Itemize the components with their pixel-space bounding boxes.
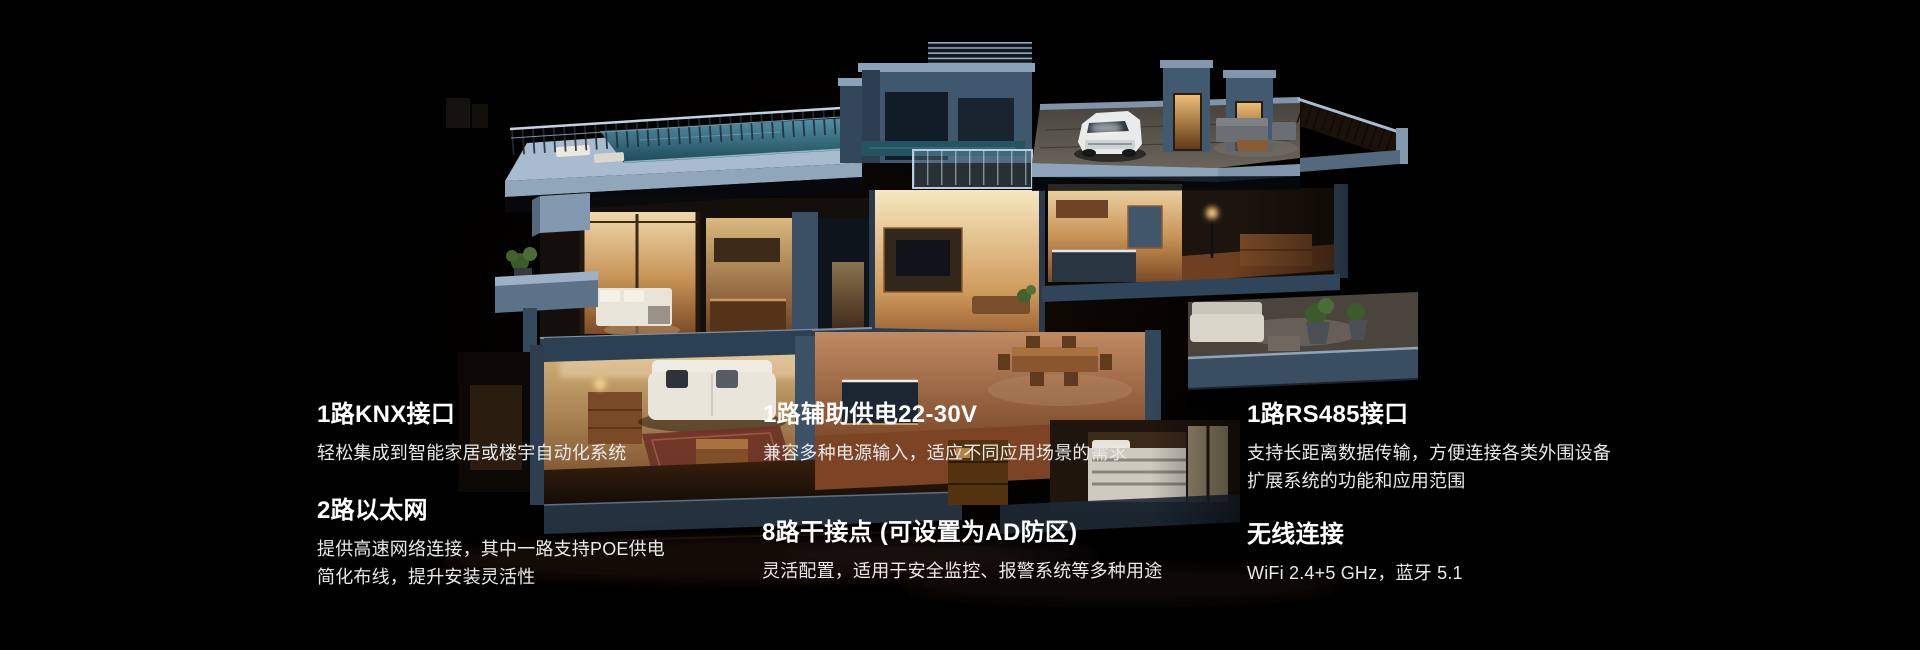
feature-title: 1路RS485接口 <box>1247 399 1611 431</box>
feature-title: 8路干接点 (可设置为AD防区) <box>762 517 1162 549</box>
upper-floor-right <box>1042 184 1350 302</box>
feature-dry-contacts: 8路干接点 (可设置为AD防区) 灵活配置，适用于安全监控、报警系统等多种用途 <box>762 517 1162 585</box>
feature-ethernet: 2路以太网 提供高速网络连接，其中一路支持POE供电 简化布线，提升安装灵活性 <box>317 495 665 591</box>
feature-line: 轻松集成到智能家居或楼宇自动化系统 <box>317 439 626 467</box>
feature-wireless: 无线连接 WiFi 2.4+5 GHz，蓝牙 5.1 <box>1247 519 1463 587</box>
feature-line: 兼容多种电源输入，适应不同应用场景的需求 <box>763 439 1127 467</box>
feature-title: 1路KNX接口 <box>317 399 626 431</box>
feature-title: 1路辅助供电22-30V <box>763 399 1127 431</box>
feature-line: 支持长距离数据传输，方便连接各类外围设备 <box>1247 439 1611 467</box>
feature-knx: 1路KNX接口 轻松集成到智能家居或楼宇自动化系统 <box>317 399 626 467</box>
feature-line: 扩展系统的功能和应用范围 <box>1247 467 1611 495</box>
feature-aux-power: 1路辅助供电22-30V 兼容多种电源输入，适应不同应用场景的需求 <box>763 399 1127 467</box>
upper-floor-left <box>540 198 874 338</box>
feature-line: 提供高速网络连接，其中一路支持POE供电 <box>317 535 665 563</box>
feature-line: 简化布线，提升安装灵活性 <box>317 563 665 591</box>
hero-banner: 1路KNX接口 轻松集成到智能家居或楼宇自动化系统 2路以太网 提供高速网络连接… <box>0 0 1920 650</box>
feature-line: WiFi 2.4+5 GHz，蓝牙 5.1 <box>1247 559 1463 587</box>
feature-rs485: 1路RS485接口 支持长距离数据传输，方便连接各类外围设备 扩展系统的功能和应… <box>1247 399 1611 495</box>
right-garden-terrace <box>1188 292 1418 408</box>
feature-line: 灵活配置，适用于安全监控、报警系统等多种用途 <box>762 557 1162 585</box>
page-root: { "page": { "background": "#000000" }, "… <box>0 0 1920 650</box>
feature-title: 无线连接 <box>1247 519 1463 551</box>
double-height-lounge <box>872 190 1042 336</box>
feature-title: 2路以太网 <box>317 495 665 527</box>
